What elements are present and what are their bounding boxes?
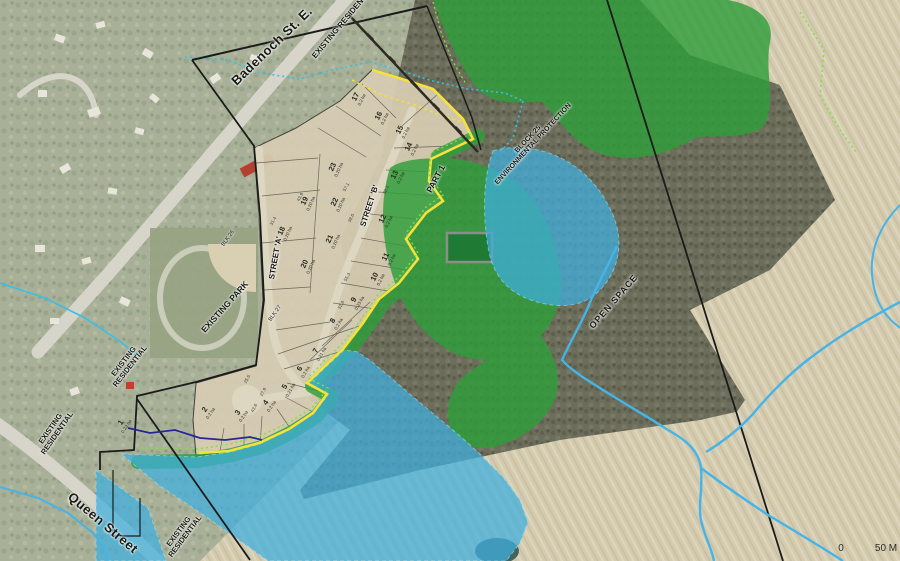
scale-zero-label: 0 [838, 544, 844, 555]
map-graphics [0, 0, 900, 561]
scale-fifty-label: 50 M [875, 544, 897, 555]
swm-block-rectangle [447, 233, 492, 262]
aerial-plan-map: Badenoch St. E. Queen Street STREET 'A' … [0, 0, 900, 561]
red-house-building [126, 382, 134, 389]
